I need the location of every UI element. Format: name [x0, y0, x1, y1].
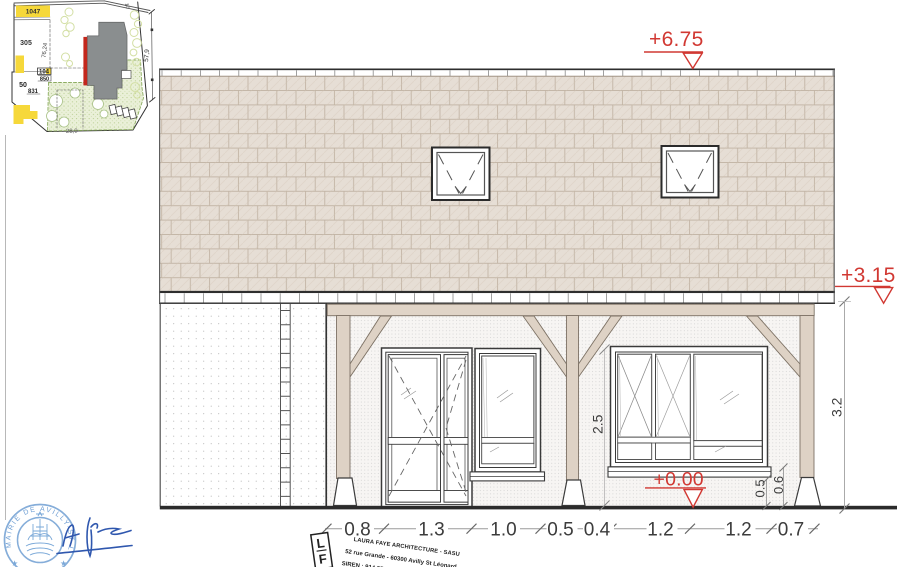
svg-text:2.5: 2.5	[590, 414, 606, 434]
svg-text:0.4: 0.4	[584, 519, 611, 540]
svg-text:3.2: 3.2	[829, 397, 845, 417]
svg-text:28,0: 28,0	[66, 129, 79, 135]
svg-text:305: 305	[20, 40, 32, 47]
svg-text:1047: 1047	[26, 9, 41, 16]
svg-text:0.7: 0.7	[778, 519, 804, 540]
svg-text:+6.75: +6.75	[649, 28, 704, 51]
svg-text:0.5: 0.5	[753, 479, 768, 497]
svg-text:1.3: 1.3	[418, 519, 444, 540]
svg-text:1.2: 1.2	[725, 519, 751, 540]
svg-text:850: 850	[40, 77, 49, 83]
svg-text:104: 104	[39, 70, 50, 76]
svg-text:50: 50	[19, 82, 27, 89]
svg-text:1.2: 1.2	[647, 519, 673, 540]
svg-text:+3.15: +3.15	[841, 264, 896, 287]
svg-text:★: ★	[11, 559, 18, 567]
svg-text:57,9: 57,9	[143, 49, 151, 63]
svg-text:1.0: 1.0	[490, 519, 516, 540]
svg-text:★: ★	[60, 559, 67, 567]
svg-text:0.6: 0.6	[771, 476, 786, 494]
svg-text:0.5: 0.5	[547, 519, 573, 540]
